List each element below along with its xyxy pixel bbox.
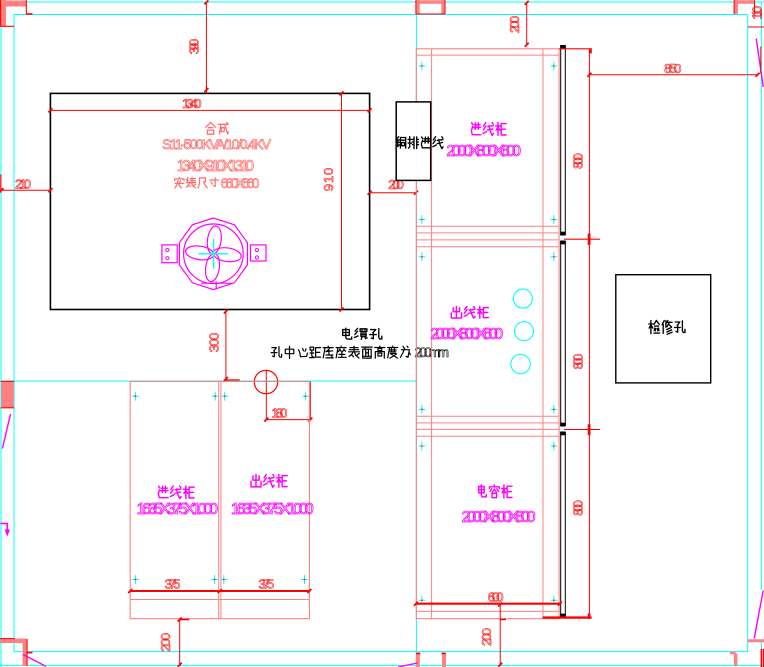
svg-text:2000X800X600: 2000X800X600 <box>462 509 536 526</box>
svg-text:375: 375 <box>165 577 181 592</box>
svg-text:200: 200 <box>507 16 522 33</box>
svg-text:850: 850 <box>664 61 681 76</box>
svg-text:1340: 1340 <box>182 96 202 111</box>
svg-text:1635X375X1000: 1635X375X1000 <box>137 501 219 518</box>
svg-text:800: 800 <box>571 153 586 169</box>
svg-text:1340X910X1310: 1340X910X1310 <box>177 158 255 175</box>
svg-text:800: 800 <box>571 500 586 516</box>
svg-text:910: 910 <box>321 168 336 192</box>
svg-text:800: 800 <box>571 354 586 370</box>
svg-text:2000X800X600: 2000X800X600 <box>446 143 521 160</box>
svg-text:2000X800X600: 2000X800X600 <box>430 326 503 343</box>
svg-text:200: 200 <box>479 628 494 646</box>
svg-text:1635X375X1000: 1635X375X1000 <box>231 501 314 518</box>
svg-text:110: 110 <box>750 6 764 20</box>
svg-text:200: 200 <box>158 633 173 652</box>
svg-text:210: 210 <box>15 176 31 191</box>
svg-text:300: 300 <box>207 333 222 353</box>
svg-text:660X660: 660X660 <box>221 175 260 191</box>
svg-text:390: 390 <box>186 39 201 55</box>
svg-text:180: 180 <box>271 405 287 420</box>
svg-text:S11-500KVA/10/0.4KV: S11-500KVA/10/0.4KV <box>162 136 272 152</box>
svg-text:375: 375 <box>258 577 274 592</box>
svg-text:600: 600 <box>488 589 504 604</box>
